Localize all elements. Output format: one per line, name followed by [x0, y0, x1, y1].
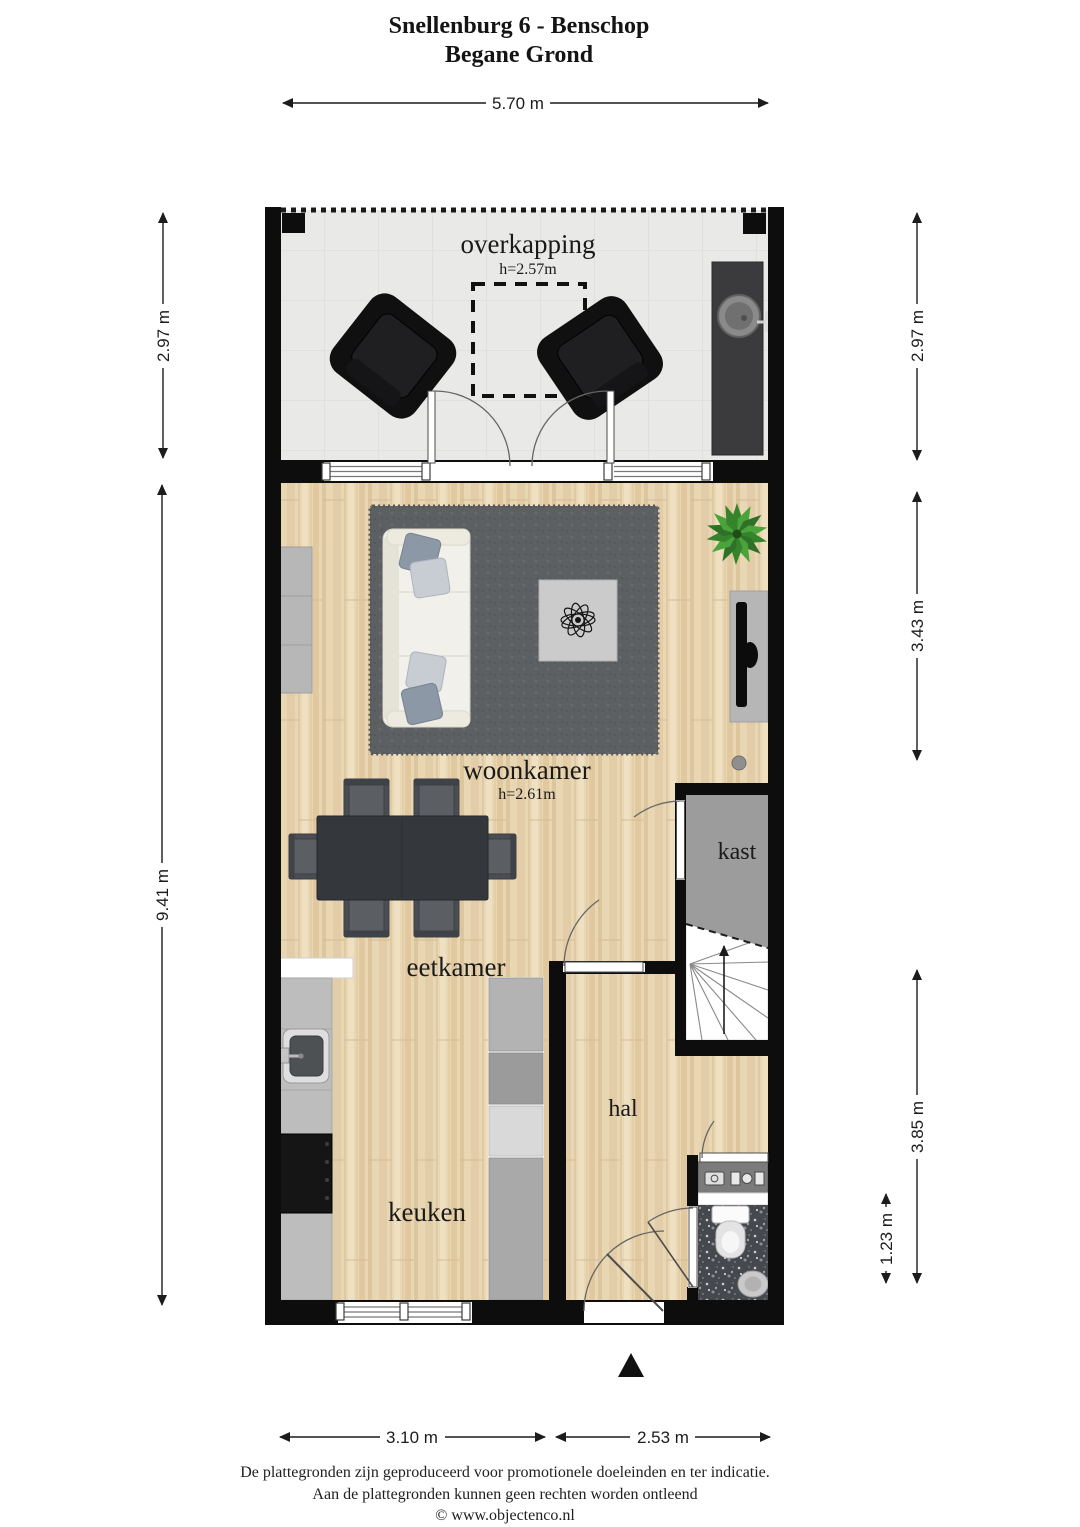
room-label-hal: hal: [608, 1096, 638, 1122]
terrace-post-right: [743, 213, 766, 234]
dining-chair: [289, 834, 320, 879]
meter-icons: [705, 1172, 764, 1185]
dining-chair: [344, 779, 389, 816]
kast-floor: [686, 795, 768, 948]
tall-cabinets: [488, 977, 544, 1300]
disclaimer: De plattegronden zijn geproduceerd voor …: [0, 1462, 1010, 1527]
dim-label-right-living: 3.43 m: [908, 600, 927, 652]
dim-label-left-terrace: 2.97 m: [154, 310, 173, 362]
dim-label-bottom-left: 3.10 m: [386, 1428, 438, 1447]
floorplan-page: Snellenburg 6 - Benschop Begane Grond: [0, 0, 1080, 1527]
exterior-wall-right: [768, 207, 784, 1325]
tv-cabinet: [730, 591, 768, 722]
toilet-threshold: [698, 1193, 768, 1205]
coffee-table: [539, 580, 617, 661]
disclaimer-line-1: De plattegronden zijn geproduceerd voor …: [0, 1462, 1010, 1484]
floorplan-drawing: overkapping h=2.57m woonkamer h=2.61m ka…: [0, 0, 1080, 1527]
dim-label-right-hall: 3.85 m: [908, 1101, 927, 1153]
room-label-woonkamer: woonkamer: [463, 755, 590, 785]
room-height-overkapping: h=2.57m: [499, 261, 557, 278]
dining-chair: [414, 900, 459, 937]
north-arrow: [618, 1353, 644, 1377]
dining-chair: [344, 900, 389, 937]
stairs-bottom-wall: [675, 1040, 769, 1056]
dim-label-top-width: 5.70 m: [492, 94, 544, 113]
sofa: [383, 529, 470, 727]
speaker: [732, 756, 746, 770]
hall-kitchen-wall: [549, 961, 566, 1300]
room-label-overkapping: overkapping: [461, 229, 596, 259]
dim-label-bottom-right: 2.53 m: [637, 1428, 689, 1447]
room-label-kast: kast: [718, 839, 757, 865]
dim-label-right-toilet: 1.23 m: [877, 1213, 896, 1265]
terrace-post-left: [282, 213, 305, 233]
dim-label-left-main: 9.41 m: [153, 869, 172, 921]
toilet-wall-lower: [687, 1287, 698, 1301]
disclaimer-line-3: © www.objectenco.nl: [0, 1505, 1010, 1527]
toilet: [712, 1206, 749, 1258]
stove: [277, 1134, 332, 1213]
sideboard: [278, 547, 312, 693]
kast-top-wall: [675, 783, 769, 795]
dining-chair: [485, 834, 516, 879]
dim-label-right-terrace: 2.97 m: [908, 310, 927, 362]
exterior-wall-left: [265, 207, 281, 1325]
bbq-cabinet: [712, 262, 770, 455]
disclaimer-line-2: Aan de plattegronden kunnen geen rechten…: [0, 1484, 1010, 1506]
hand-basin: [738, 1271, 768, 1297]
toilet-wall-upper: [687, 1155, 698, 1206]
dining-table: [317, 816, 488, 900]
kitchen-window: [336, 1302, 472, 1323]
room-height-woonkamer: h=2.61m: [498, 786, 556, 803]
kitchen-sink: [280, 1029, 329, 1083]
room-label-eetkamer: eetkamer: [407, 952, 506, 982]
kitchen-shelf: [280, 958, 353, 978]
room-label-keuken: keuken: [388, 1197, 466, 1227]
dining-chair: [414, 779, 459, 816]
